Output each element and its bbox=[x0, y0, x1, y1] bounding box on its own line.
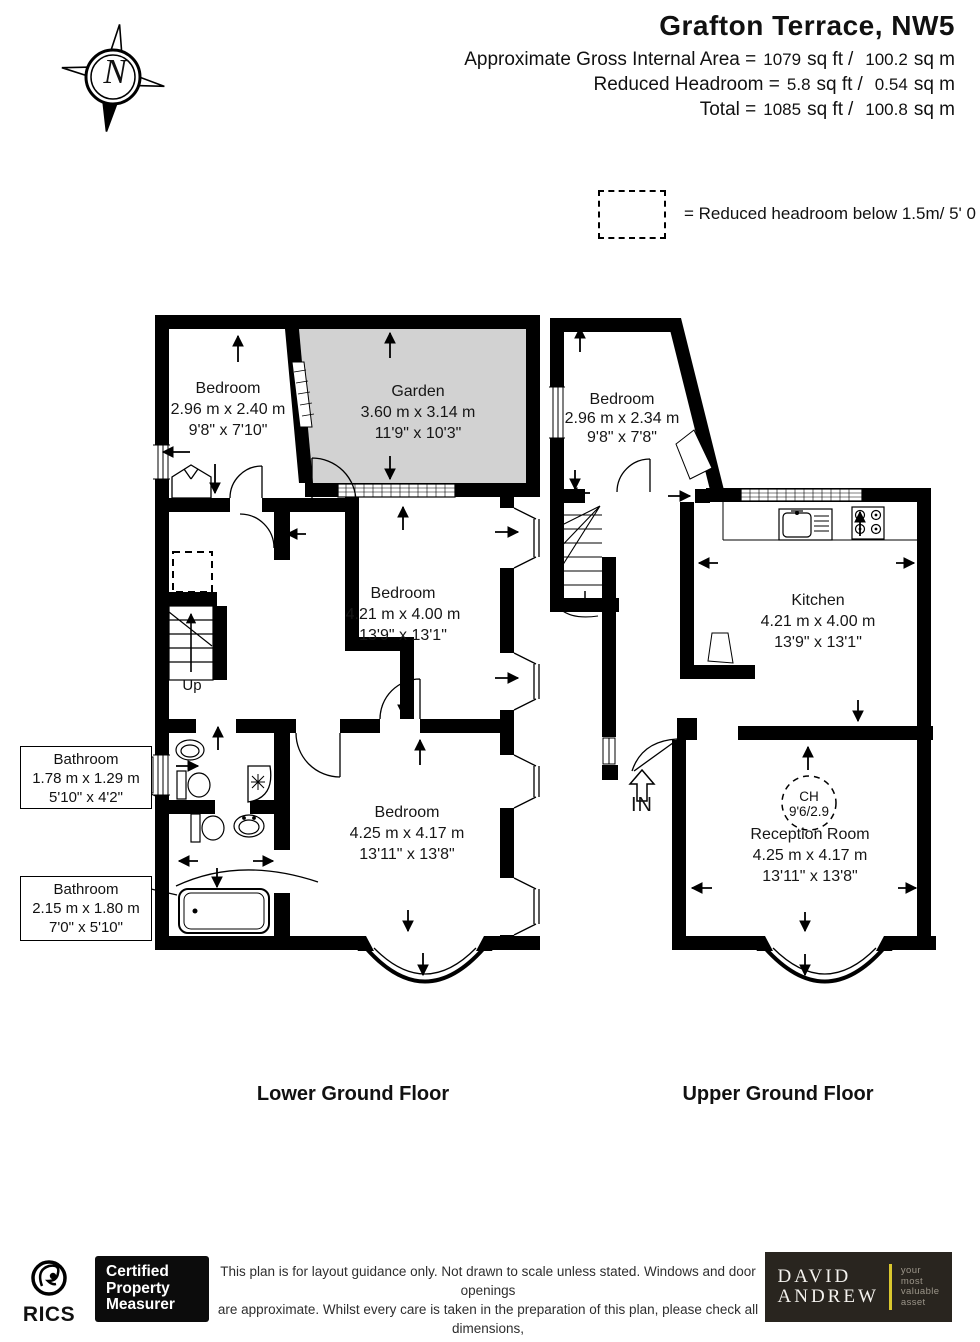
entrance-in-label: IN bbox=[631, 794, 653, 817]
shower-icon bbox=[248, 766, 271, 802]
sink-icon bbox=[779, 509, 832, 540]
area-sqm-unit: sq m bbox=[914, 74, 955, 96]
bathtub-icon bbox=[179, 889, 269, 933]
page-title: Grafton Terrace, NW5 bbox=[659, 10, 955, 42]
closet-icon bbox=[172, 465, 211, 498]
basin-icon bbox=[176, 740, 204, 760]
area-sqm-value: 0.54 bbox=[875, 75, 908, 95]
area-label: Total = bbox=[700, 99, 757, 121]
room-label-reception: Reception Room 4.25 m x 4.17 m 13'11" x … bbox=[750, 824, 869, 887]
area-row-total: Total = 1085 sq ft / 100.8 sq m bbox=[464, 99, 955, 124]
rics-wordmark: RICS bbox=[16, 1303, 82, 1327]
toilet-icon bbox=[191, 814, 224, 842]
room-label-garden: Garden 3.60 m x 3.14 m 11'9" x 10'3" bbox=[361, 381, 476, 444]
disclaimer-text: This plan is for layout guidance only. N… bbox=[213, 1262, 763, 1342]
area-row-gross: Approximate Gross Internal Area = 1079 s… bbox=[464, 49, 955, 74]
room-label-bedroom1: Bedroom 2.96 m x 2.40 m 9'8" x 7'10" bbox=[171, 378, 286, 441]
compass-north-label: N bbox=[95, 52, 135, 92]
window-kitchen bbox=[741, 489, 862, 501]
stairs-up-lower bbox=[169, 606, 213, 680]
area-summary: Approximate Gross Internal Area = 1079 s… bbox=[464, 49, 955, 124]
area-sqm-unit: sq m bbox=[914, 49, 955, 71]
area-label: Reduced Headroom = bbox=[593, 74, 779, 96]
brand-divider bbox=[889, 1264, 892, 1310]
reduced-headroom-legend-text: = Reduced headroom below 1.5m/ 5' 0 bbox=[684, 204, 976, 224]
certified-property-measurer-badge: Certified Property Measurer bbox=[95, 1256, 209, 1322]
open-door-leaf bbox=[708, 633, 733, 663]
room-label-bedroom2: Bedroom 4.21 m x 4.00 m 13'9" x 13'1" bbox=[346, 583, 461, 646]
area-sqft-unit: sq ft bbox=[817, 74, 853, 96]
floorplan-page: Grafton Terrace, NW5 Approximate Gross I… bbox=[0, 0, 980, 1342]
stairs-up-label: Up bbox=[177, 677, 207, 694]
area-sqm-unit: sq m bbox=[914, 99, 955, 121]
floor-title-lower: Lower Ground Floor bbox=[257, 1083, 449, 1106]
bay-window-bottom-upper bbox=[749, 936, 900, 982]
room-label-kitchen: Kitchen 4.21 m x 4.00 m 13'9" x 13'1" bbox=[761, 590, 876, 653]
reduced-headroom-zone bbox=[173, 552, 212, 592]
area-sqft-unit: sq ft bbox=[807, 99, 843, 121]
area-sqft-unit: sq ft bbox=[807, 49, 843, 71]
callout-bathroom2: Bathroom 2.15 m x 1.80 m 7'0" x 5'10" bbox=[20, 876, 152, 941]
area-sqft-value: 5.8 bbox=[787, 75, 811, 95]
rics-logo: RICS bbox=[16, 1258, 82, 1327]
area-label: Approximate Gross Internal Area = bbox=[464, 49, 756, 71]
brand-tagline: your most valuable asset bbox=[901, 1266, 940, 1308]
bay-window-bottom-lower bbox=[350, 936, 500, 982]
area-sqm-value: 100.8 bbox=[865, 100, 908, 120]
basin-icon bbox=[234, 815, 264, 837]
hob-icon bbox=[852, 507, 884, 539]
area-separator: / bbox=[848, 49, 853, 71]
area-separator: / bbox=[857, 74, 862, 96]
reduced-headroom-legend-swatch bbox=[598, 190, 666, 239]
doors-upper bbox=[617, 459, 677, 771]
room-label-bedroom-upper: Bedroom 2.96 m x 2.34 m 9'8" x 7'8" bbox=[565, 390, 680, 447]
entrance-door-frame bbox=[601, 737, 618, 765]
window-bedroom-upper-left bbox=[549, 387, 565, 438]
window-bedroom1-left bbox=[153, 445, 170, 479]
area-row-reduced: Reduced Headroom = 5.8 sq ft / 0.54 sq m bbox=[464, 74, 955, 99]
room-label-bedroom3: Bedroom 4.25 m x 4.17 m 13'11" x 13'8" bbox=[350, 802, 465, 865]
area-sqft-value: 1079 bbox=[763, 50, 801, 70]
brand-wordmark: DAVID ANDREW bbox=[778, 1267, 879, 1307]
david-andrew-logo: DAVID ANDREW your most valuable asset bbox=[765, 1252, 952, 1322]
bay-windows-right-lower bbox=[514, 508, 539, 935]
area-sqm-value: 100.2 bbox=[865, 50, 908, 70]
rics-lion-icon bbox=[22, 1258, 76, 1300]
ceiling-height-label: CH 9'6/2.9 bbox=[789, 789, 829, 819]
callout-bathroom1: Bathroom 1.78 m x 1.29 m 5'10" x 4'2" bbox=[20, 746, 152, 809]
area-sqft-value: 1085 bbox=[763, 100, 801, 120]
toilet-icon bbox=[177, 771, 210, 799]
area-separator: / bbox=[848, 99, 853, 121]
floor-title-upper: Upper Ground Floor bbox=[682, 1083, 873, 1106]
